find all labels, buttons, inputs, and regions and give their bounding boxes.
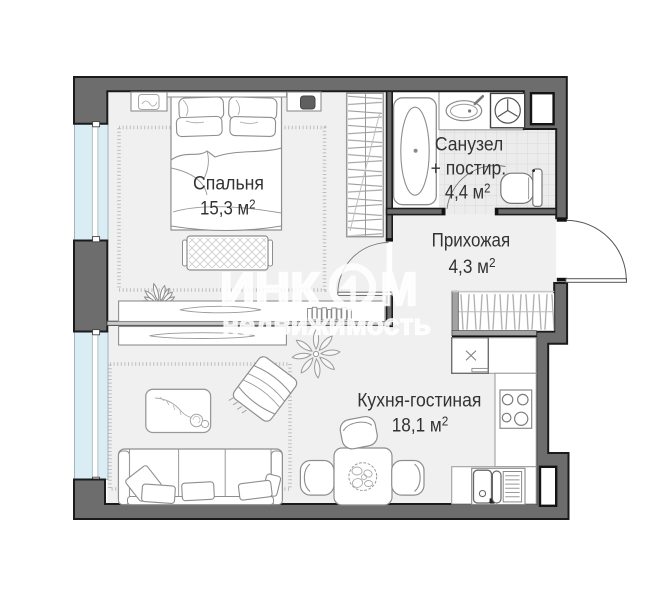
- svg-text:ИНК: ИНК: [220, 263, 321, 315]
- svg-text:15,3 м2: 15,3 м2: [200, 196, 256, 219]
- svg-text:М: М: [381, 263, 418, 315]
- svg-text:Санузел: Санузел: [435, 134, 503, 155]
- svg-text:Кухня-гостиная: Кухня-гостиная: [357, 390, 481, 411]
- svg-text:Спальня: Спальня: [193, 174, 264, 195]
- svg-text:Прихожая: Прихожая: [432, 231, 511, 252]
- svg-text:4,4 м2: 4,4 м2: [445, 180, 491, 203]
- svg-text:недвижимость: недвижимость: [222, 308, 431, 341]
- svg-text:18,1 м2: 18,1 м2: [392, 413, 449, 436]
- svg-text:+ постир.: + постир.: [431, 158, 507, 179]
- svg-text:4,3 м2: 4,3 м2: [449, 255, 496, 278]
